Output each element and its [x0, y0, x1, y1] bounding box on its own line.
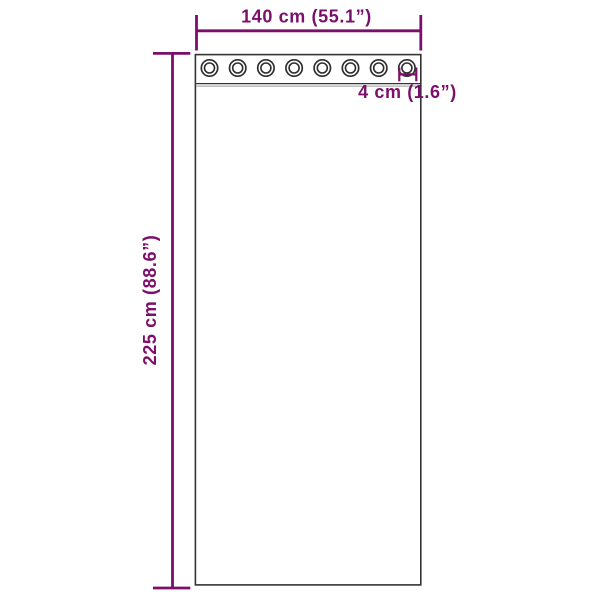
svg-text:225 cm (88.6”): 225 cm (88.6”)	[140, 235, 160, 366]
svg-text:4 cm (1.6”): 4 cm (1.6”)	[358, 82, 457, 102]
svg-text:140 cm (55.1”): 140 cm (55.1”)	[241, 7, 372, 27]
